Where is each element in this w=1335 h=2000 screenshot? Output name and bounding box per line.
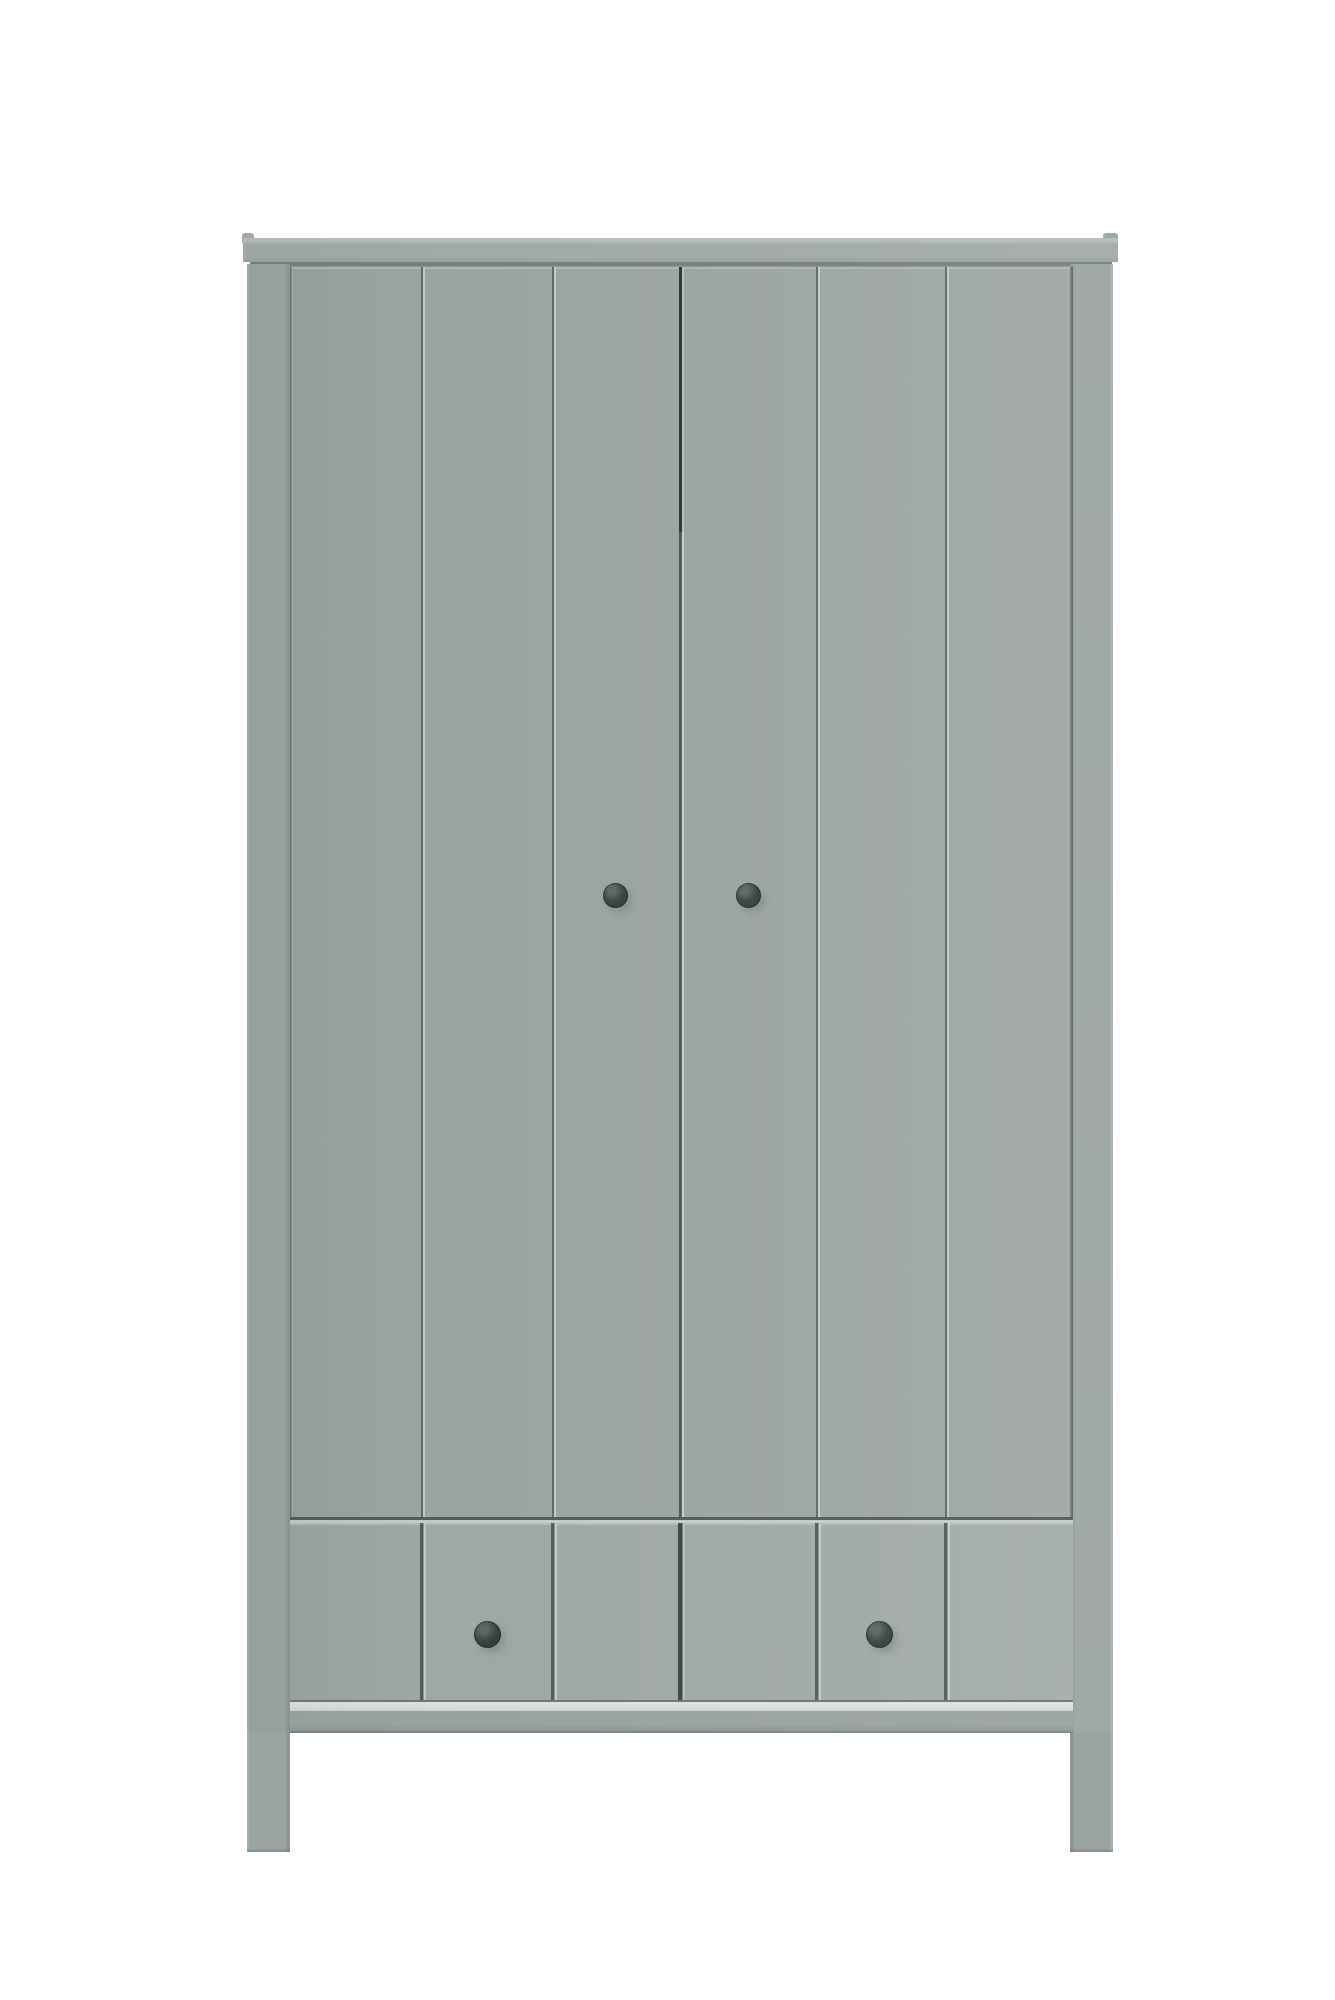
center-door-gap-upper [679, 267, 684, 532]
plank-groove [552, 267, 556, 1517]
product-photo-canvas [0, 0, 1335, 2000]
center-door-gap-lower [679, 532, 684, 1517]
drawer-plank-groove [944, 1523, 950, 1700]
drawer-plank-groove [551, 1523, 557, 1700]
plank-groove [421, 267, 425, 1517]
door-knob-right [736, 883, 761, 908]
right-side-stile-and-leg [1070, 264, 1113, 1852]
base-highlight-strip [290, 1702, 1073, 1711]
right-door-edge-shadow [1070, 267, 1073, 1517]
door-knob-left [603, 883, 628, 908]
drawer-plank-groove [815, 1523, 821, 1700]
plank-groove [816, 267, 820, 1517]
wardrobe-top-lid [243, 238, 1118, 262]
left-side-stile-and-leg [247, 264, 290, 1852]
bottom-rail [290, 1711, 1073, 1733]
plank-groove [945, 267, 949, 1517]
drawer-knob-left [474, 1621, 501, 1648]
wardrobe-front [290, 264, 1073, 1733]
center-drawer-gap [678, 1523, 685, 1700]
drawer-plank-groove [420, 1523, 426, 1700]
drawer-knob-right [866, 1621, 893, 1648]
